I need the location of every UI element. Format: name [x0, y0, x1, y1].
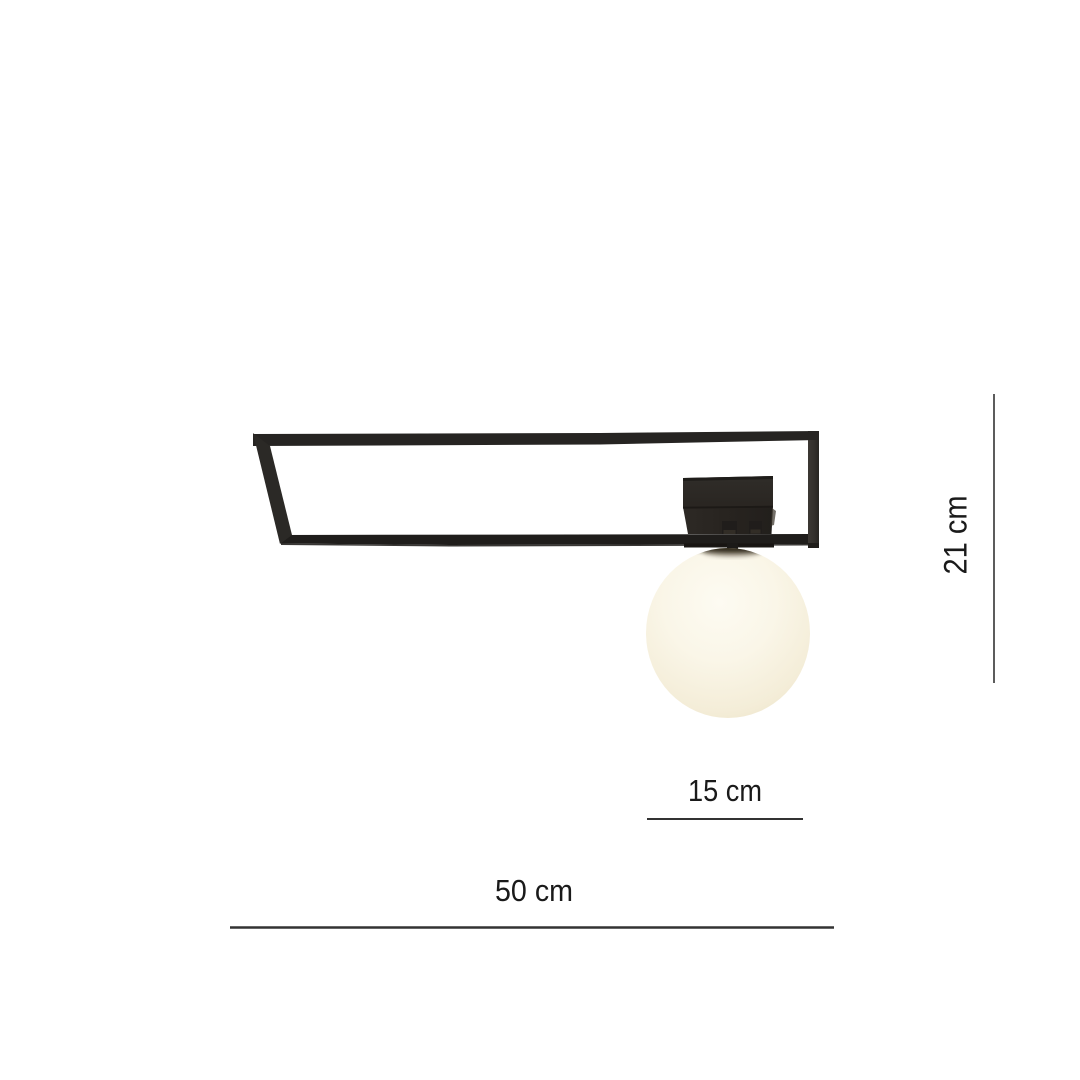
- svg-text:21 cm: 21 cm: [937, 496, 973, 575]
- svg-text:50 cm: 50 cm: [495, 873, 573, 908]
- svg-text:15 cm: 15 cm: [688, 773, 762, 808]
